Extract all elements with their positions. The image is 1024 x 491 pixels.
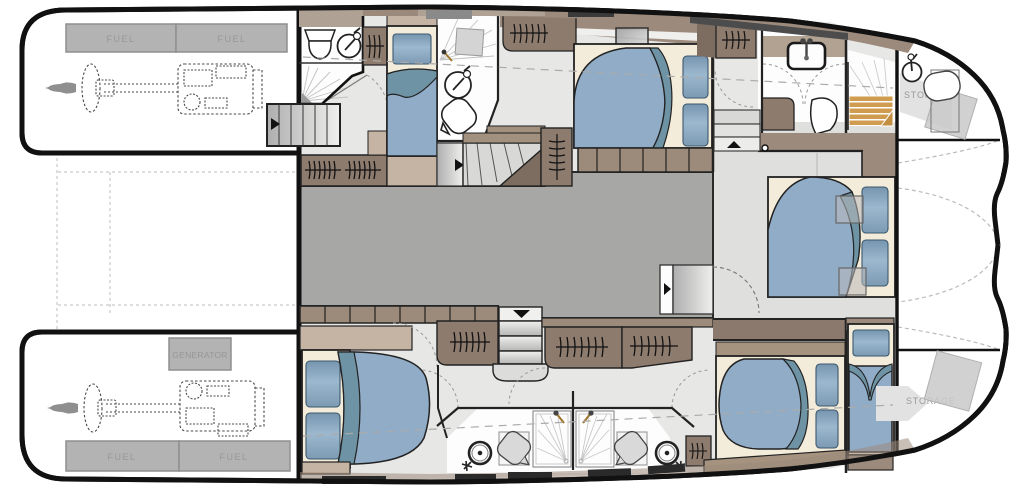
svg-text:FUEL: FUEL <box>219 452 248 462</box>
svg-text:FUEL: FUEL <box>107 452 136 462</box>
svg-text:GENERATOR: GENERATOR <box>172 350 227 360</box>
svg-text:FUEL: FUEL <box>217 34 246 44</box>
svg-text:FUEL: FUEL <box>106 34 135 44</box>
